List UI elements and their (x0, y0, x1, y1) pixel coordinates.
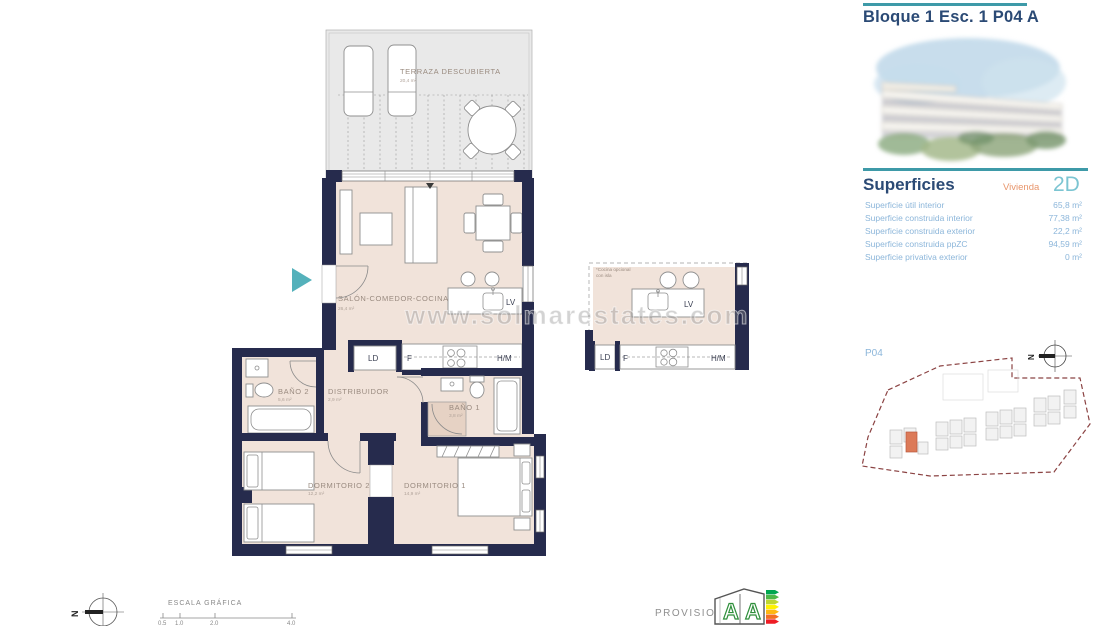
double-bed (458, 458, 532, 516)
sliding-window (326, 170, 532, 182)
scale-tick: 1.0 (175, 621, 184, 626)
row-value: 0 m² (1065, 251, 1082, 264)
sink (246, 359, 268, 377)
salon-area: 26,4 m² (338, 306, 355, 312)
row-value: 22,2 m² (1053, 225, 1082, 238)
entrance-arrow-icon (292, 268, 312, 292)
site-plan: P04 N (848, 334, 1098, 482)
wardrobe (437, 446, 499, 457)
toilet (470, 376, 484, 382)
bano1-area: 3,8 m² (449, 413, 463, 419)
terrace-table-set (463, 100, 522, 161)
building-rendering (866, 32, 1071, 166)
dormitorio2-label: DORMITORIO 2 (308, 481, 370, 490)
energy-rating-icon: A A (712, 586, 784, 626)
bano2-label: BAÑO 2 (278, 387, 309, 396)
bano1-label: BAÑO 1 (449, 403, 480, 412)
north-letter: N (1027, 354, 1036, 360)
siteplan-label: P04 (865, 348, 883, 359)
table-row: Superficie construida exterior 22,2 m² (865, 225, 1082, 238)
scale-tick: 4.0 (287, 621, 296, 626)
top-rule (863, 3, 1027, 6)
energy-arrows (766, 590, 779, 624)
shower-tray (494, 378, 520, 434)
row-label: Superficie privativa exterior (865, 251, 968, 264)
bathtub (248, 406, 314, 433)
ld-label: LD (600, 353, 610, 362)
nightstand (514, 518, 530, 530)
f-label: F (407, 354, 412, 363)
dormitorio1-area: 14,9 m² (404, 491, 421, 497)
hm-label: H/M (711, 354, 726, 363)
north-compass-icon: N (1027, 340, 1072, 372)
dormitorio2-area: 12,2 m² (308, 491, 325, 497)
terraza-area: 20,4 m² (400, 78, 417, 84)
page-title: Bloque 1 Esc. 1 P04 A (863, 8, 1039, 27)
toilet (246, 384, 253, 397)
single-bed (244, 504, 314, 542)
row-value: 77,38 m² (1048, 212, 1082, 225)
north-compass-icon: N (70, 593, 124, 626)
hm-label: H/M (497, 354, 512, 363)
stool (485, 272, 499, 286)
row-value: 65,8 m² (1053, 199, 1082, 212)
superficies-header: Superficies Vivienda 2D (863, 173, 1088, 195)
stool (683, 272, 699, 288)
row-label: Superficie útil interior (865, 199, 944, 212)
superficies-table: Superficie útil interior 65,8 m² Superfi… (865, 199, 1082, 264)
site-buildings (890, 370, 1076, 458)
scale-bar: 0.5 1.0 2.0 4.0 (158, 613, 296, 626)
nightstand (514, 444, 530, 456)
sofa (405, 183, 437, 263)
scale-tick: 0.5 (158, 621, 167, 626)
sideboard (340, 190, 352, 254)
superficies-heading: Superficies (863, 175, 955, 195)
vegetation (878, 131, 1066, 161)
distribuidor-label: DISTRIBUIDOR (328, 387, 389, 396)
dormitorio1-label: DORMITORIO 1 (404, 481, 466, 490)
north-letter: N (70, 611, 80, 618)
floorplan-page: TERRAZA DESCUBIERTA 20,4 m² (0, 0, 1110, 626)
terraza-label: TERRAZA DESCUBIERTA (400, 67, 501, 76)
ld-label: LD (368, 354, 378, 363)
table-row: Superficie privativa exterior 0 m² (865, 251, 1082, 264)
table-row: Superficie construida interior 77,38 m² (865, 212, 1082, 225)
watermark: www.solmarestates.com (405, 300, 715, 331)
row-value: 94,59 m² (1048, 238, 1082, 251)
main-floorplan: TERRAZA DESCUBIERTA 20,4 m² (225, 25, 565, 565)
table-row: Superficie construida ppZC 94,59 m² (865, 238, 1082, 251)
table-row: Superficie útil interior 65,8 m² (865, 199, 1082, 212)
stool (461, 272, 475, 286)
single-bed (244, 452, 314, 490)
row-label: Superficie construida interior (865, 212, 973, 225)
bano2-area: 5,6 m² (278, 397, 292, 403)
highlighted-building (906, 432, 917, 452)
optional-note-line1: *Cocina opcional (596, 267, 630, 272)
sink (441, 378, 463, 391)
stool (660, 272, 676, 288)
scale-area: N ESCALA GRÁFICA 0.5 1.0 2.0 4.0 (60, 592, 320, 626)
mid-rule (863, 168, 1088, 171)
vivienda-label: Vivienda (1003, 182, 1039, 193)
bedroom-divider (368, 433, 394, 546)
scale-label: ESCALA GRÁFICA (168, 598, 242, 607)
vivienda-type: 2D (1053, 173, 1080, 197)
coffee-table (360, 213, 392, 245)
sun-lounger (344, 46, 373, 116)
row-label: Superficie construida ppZC (865, 238, 968, 251)
scale-tick: 2.0 (210, 621, 219, 626)
optional-note-line2: con isla (596, 273, 612, 278)
row-label: Superficie construida exterior (865, 225, 975, 238)
f-label: F (623, 354, 628, 363)
energy-letter-right: A (745, 599, 761, 624)
distribuidor-area: 2,9 m² (328, 397, 342, 403)
energy-letter-left: A (723, 599, 739, 624)
